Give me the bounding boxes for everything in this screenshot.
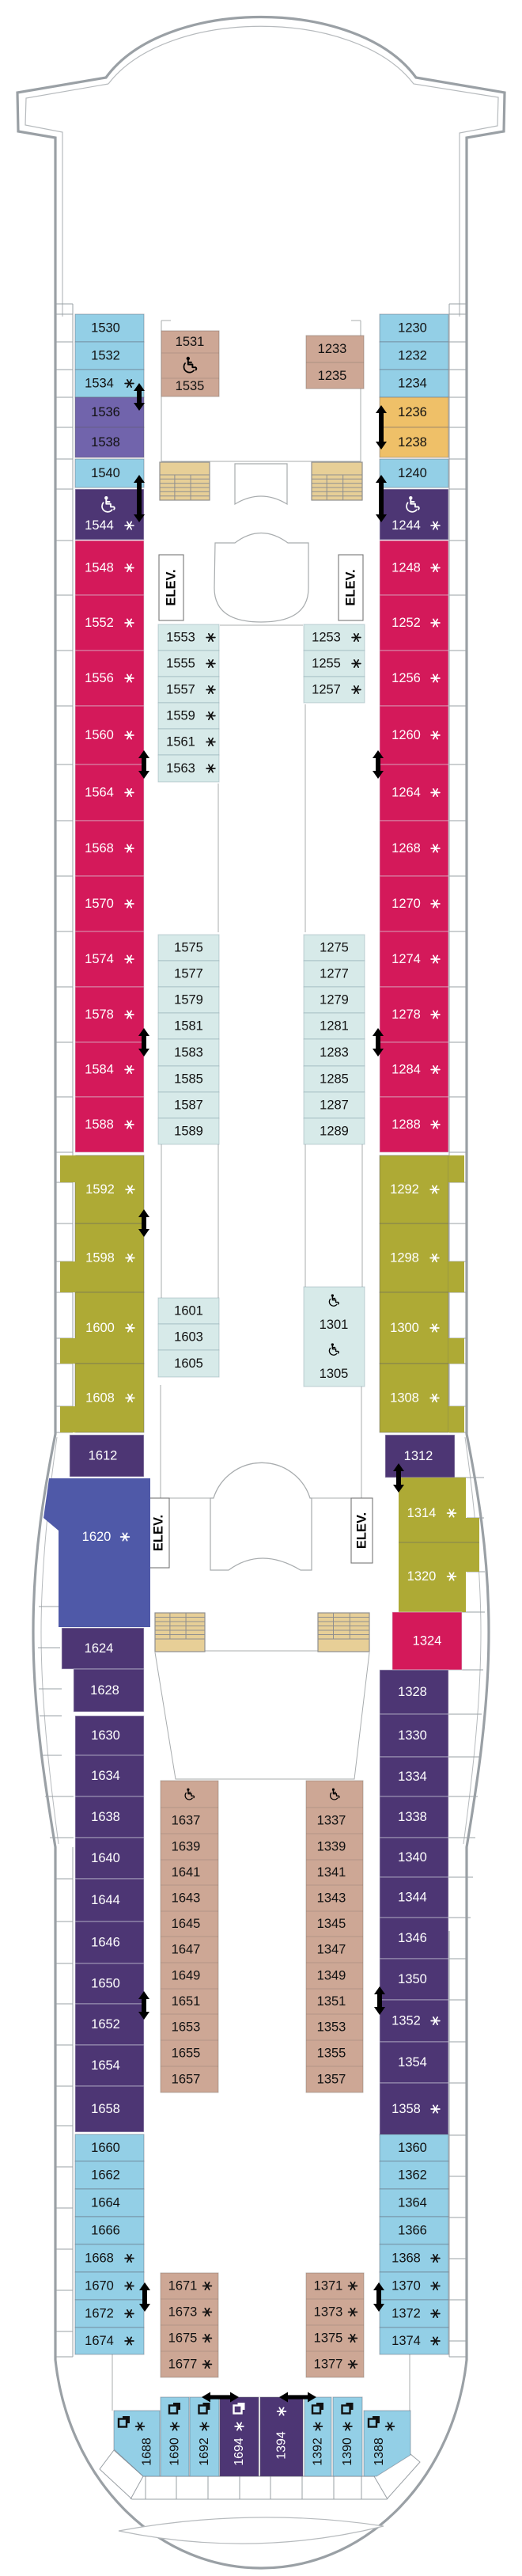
svg-text:1270: 1270 [391, 897, 421, 911]
svg-text:1592: 1592 [85, 1182, 115, 1197]
svg-text:1357: 1357 [317, 2073, 346, 2087]
svg-text:1352: 1352 [391, 2014, 421, 2028]
svg-text:1671: 1671 [168, 2279, 198, 2293]
svg-text:1531: 1531 [176, 335, 205, 349]
svg-text:1349: 1349 [317, 1969, 346, 1983]
svg-text:1645: 1645 [172, 1917, 201, 1931]
svg-text:1354: 1354 [398, 2055, 427, 2070]
svg-text:1570: 1570 [85, 897, 114, 911]
svg-text:1268: 1268 [391, 841, 421, 856]
svg-text:1579: 1579 [174, 993, 203, 1007]
svg-text:1339: 1339 [317, 1840, 346, 1854]
svg-text:1330: 1330 [398, 1728, 427, 1743]
svg-text:1677: 1677 [168, 2358, 198, 2372]
svg-text:1350: 1350 [398, 1972, 427, 1986]
svg-text:1343: 1343 [317, 1891, 346, 1906]
svg-text:1260: 1260 [391, 728, 421, 742]
svg-text:1530: 1530 [91, 321, 120, 336]
svg-text:1654: 1654 [91, 2058, 120, 2073]
svg-text:1234: 1234 [398, 377, 427, 391]
svg-text:1298: 1298 [390, 1251, 419, 1265]
svg-text:1320: 1320 [407, 1569, 437, 1584]
svg-text:1390: 1390 [341, 2438, 354, 2466]
svg-text:1603: 1603 [174, 1330, 203, 1345]
svg-text:1238: 1238 [398, 435, 427, 450]
svg-text:1560: 1560 [85, 728, 114, 742]
svg-text:1264: 1264 [391, 786, 421, 800]
svg-text:1235: 1235 [318, 369, 347, 383]
svg-text:1588: 1588 [85, 1117, 114, 1132]
svg-text:1653: 1653 [172, 2020, 201, 2035]
svg-text:1532: 1532 [91, 349, 120, 363]
svg-text:1312: 1312 [404, 1449, 433, 1463]
svg-text:1366: 1366 [398, 2224, 427, 2238]
svg-text:1252: 1252 [391, 616, 421, 630]
svg-text:1255: 1255 [312, 657, 341, 671]
svg-text:1584: 1584 [85, 1063, 114, 1077]
svg-text:1644: 1644 [91, 1893, 120, 1907]
svg-text:1674: 1674 [85, 2334, 114, 2348]
svg-text:1646: 1646 [91, 1936, 120, 1950]
svg-text:1694: 1694 [233, 2438, 246, 2466]
svg-text:1585: 1585 [174, 1072, 203, 1087]
svg-text:1279: 1279 [320, 993, 349, 1007]
svg-text:1358: 1358 [391, 2102, 421, 2116]
svg-text:1373: 1373 [314, 2305, 343, 2320]
svg-text:1581: 1581 [174, 1019, 203, 1034]
svg-text:1284: 1284 [391, 1063, 421, 1077]
svg-text:1643: 1643 [172, 1891, 201, 1906]
svg-text:1334: 1334 [398, 1770, 427, 1784]
svg-text:1277: 1277 [320, 967, 349, 981]
svg-text:1305: 1305 [320, 1367, 349, 1381]
svg-text:ELEV.: ELEV. [152, 1515, 166, 1551]
svg-text:1233: 1233 [318, 342, 347, 356]
svg-text:1535: 1535 [176, 379, 205, 393]
svg-text:1668: 1668 [85, 2252, 114, 2266]
svg-text:1232: 1232 [398, 349, 427, 363]
svg-text:1256: 1256 [391, 671, 421, 685]
svg-text:1300: 1300 [390, 1321, 419, 1335]
svg-text:1557: 1557 [166, 683, 195, 697]
svg-text:1308: 1308 [390, 1391, 419, 1406]
svg-text:1538: 1538 [91, 435, 120, 450]
svg-text:1555: 1555 [166, 657, 195, 671]
svg-text:1392: 1392 [312, 2438, 325, 2466]
svg-text:1536: 1536 [91, 405, 120, 419]
svg-text:1287: 1287 [320, 1098, 349, 1113]
svg-text:1575: 1575 [174, 941, 203, 955]
svg-text:ELEV.: ELEV. [355, 1512, 369, 1549]
svg-text:1278: 1278 [391, 1007, 421, 1022]
svg-text:1574: 1574 [85, 952, 114, 966]
svg-text:1324: 1324 [413, 1634, 442, 1648]
svg-text:1608: 1608 [85, 1391, 115, 1406]
svg-text:1655: 1655 [172, 2047, 201, 2061]
svg-text:1244: 1244 [391, 518, 421, 533]
svg-text:1275: 1275 [320, 941, 349, 955]
svg-text:1640: 1640 [91, 1851, 120, 1865]
svg-text:1577: 1577 [174, 967, 203, 981]
svg-text:1544: 1544 [85, 518, 114, 533]
svg-text:1274: 1274 [391, 952, 421, 966]
svg-text:1253: 1253 [312, 631, 341, 645]
svg-text:1628: 1628 [90, 1683, 119, 1698]
svg-text:1285: 1285 [320, 1072, 349, 1087]
svg-text:1377: 1377 [314, 2358, 343, 2372]
svg-text:1647: 1647 [172, 1943, 201, 1957]
svg-text:1639: 1639 [172, 1840, 201, 1854]
svg-text:1672: 1672 [85, 2307, 114, 2321]
svg-text:1583: 1583 [174, 1045, 203, 1060]
svg-text:1564: 1564 [85, 786, 114, 800]
svg-text:1652: 1652 [91, 2017, 120, 2032]
svg-text:1666: 1666 [91, 2224, 120, 2238]
svg-text:1605: 1605 [174, 1356, 203, 1371]
svg-text:1314: 1314 [407, 1506, 437, 1520]
svg-text:1601: 1601 [174, 1304, 203, 1318]
svg-text:1624: 1624 [85, 1641, 114, 1656]
svg-text:1664: 1664 [91, 2196, 120, 2210]
svg-text:1394: 1394 [275, 2431, 289, 2460]
svg-text:1230: 1230 [398, 321, 427, 336]
svg-text:1589: 1589 [174, 1125, 203, 1139]
svg-text:ELEV.: ELEV. [344, 569, 358, 605]
svg-text:1351: 1351 [317, 1994, 346, 2009]
svg-text:1600: 1600 [85, 1321, 115, 1335]
svg-text:1236: 1236 [398, 405, 427, 419]
svg-text:1289: 1289 [320, 1125, 349, 1139]
svg-text:1688: 1688 [141, 2438, 154, 2466]
svg-text:1630: 1630 [91, 1728, 120, 1743]
svg-text:1657: 1657 [172, 2073, 201, 2087]
svg-text:1248: 1248 [391, 561, 421, 575]
svg-text:1283: 1283 [320, 1045, 349, 1060]
svg-text:1690: 1690 [168, 2438, 182, 2466]
svg-text:1340: 1340 [398, 1850, 427, 1865]
svg-text:1670: 1670 [85, 2279, 114, 2293]
svg-text:1341: 1341 [317, 1865, 346, 1880]
svg-text:1345: 1345 [317, 1917, 346, 1931]
svg-text:1568: 1568 [85, 841, 114, 856]
svg-text:1553: 1553 [166, 631, 195, 645]
svg-text:1257: 1257 [312, 683, 341, 697]
svg-text:1620: 1620 [82, 1530, 112, 1544]
svg-text:1673: 1673 [168, 2305, 198, 2320]
svg-text:1534: 1534 [85, 377, 114, 391]
svg-text:1346: 1346 [398, 1931, 427, 1945]
svg-text:1561: 1561 [166, 735, 195, 749]
svg-text:1337: 1337 [317, 1814, 346, 1828]
svg-text:1660: 1660 [91, 2141, 120, 2155]
svg-text:1563: 1563 [166, 761, 195, 776]
svg-text:1281: 1281 [320, 1019, 349, 1034]
svg-text:1240: 1240 [398, 466, 427, 480]
svg-text:1371: 1371 [314, 2279, 343, 2293]
svg-text:1375: 1375 [314, 2331, 343, 2346]
svg-text:1650: 1650 [91, 1977, 120, 1991]
svg-text:1353: 1353 [317, 2020, 346, 2035]
svg-text:1344: 1344 [398, 1891, 427, 1905]
svg-text:1301: 1301 [320, 1318, 349, 1332]
svg-text:1540: 1540 [91, 466, 120, 480]
svg-text:1552: 1552 [85, 616, 114, 630]
svg-text:1347: 1347 [317, 1943, 346, 1957]
svg-text:1338: 1338 [398, 1810, 427, 1824]
svg-text:1612: 1612 [89, 1449, 118, 1463]
svg-text:1675: 1675 [168, 2331, 198, 2346]
svg-text:1692: 1692 [198, 2438, 211, 2466]
svg-text:1328: 1328 [398, 1685, 427, 1699]
svg-text:1388: 1388 [373, 2438, 386, 2466]
svg-text:1288: 1288 [391, 1117, 421, 1132]
svg-text:1370: 1370 [391, 2279, 421, 2293]
svg-text:1360: 1360 [398, 2141, 427, 2155]
svg-text:1637: 1637 [172, 1814, 201, 1828]
svg-text:1559: 1559 [166, 709, 195, 723]
svg-text:1364: 1364 [398, 2196, 427, 2210]
svg-text:1658: 1658 [91, 2102, 120, 2116]
svg-text:1587: 1587 [174, 1098, 203, 1113]
svg-text:1368: 1368 [391, 2252, 421, 2266]
svg-text:1634: 1634 [91, 1769, 120, 1783]
svg-text:1662: 1662 [91, 2168, 120, 2183]
svg-text:1641: 1641 [172, 1865, 201, 1880]
svg-text:1649: 1649 [172, 1969, 201, 1983]
svg-text:1372: 1372 [391, 2307, 421, 2321]
svg-text:1598: 1598 [85, 1251, 115, 1265]
svg-text:1548: 1548 [85, 561, 114, 575]
svg-text:1556: 1556 [85, 671, 114, 685]
svg-text:1362: 1362 [398, 2168, 427, 2183]
svg-text:1355: 1355 [317, 2047, 346, 2061]
svg-text:1578: 1578 [85, 1007, 114, 1022]
svg-text:1374: 1374 [391, 2334, 421, 2348]
svg-text:1651: 1651 [172, 1994, 201, 2009]
svg-text:ELEV.: ELEV. [165, 569, 179, 605]
svg-text:1638: 1638 [91, 1810, 120, 1824]
svg-text:1292: 1292 [390, 1182, 419, 1197]
